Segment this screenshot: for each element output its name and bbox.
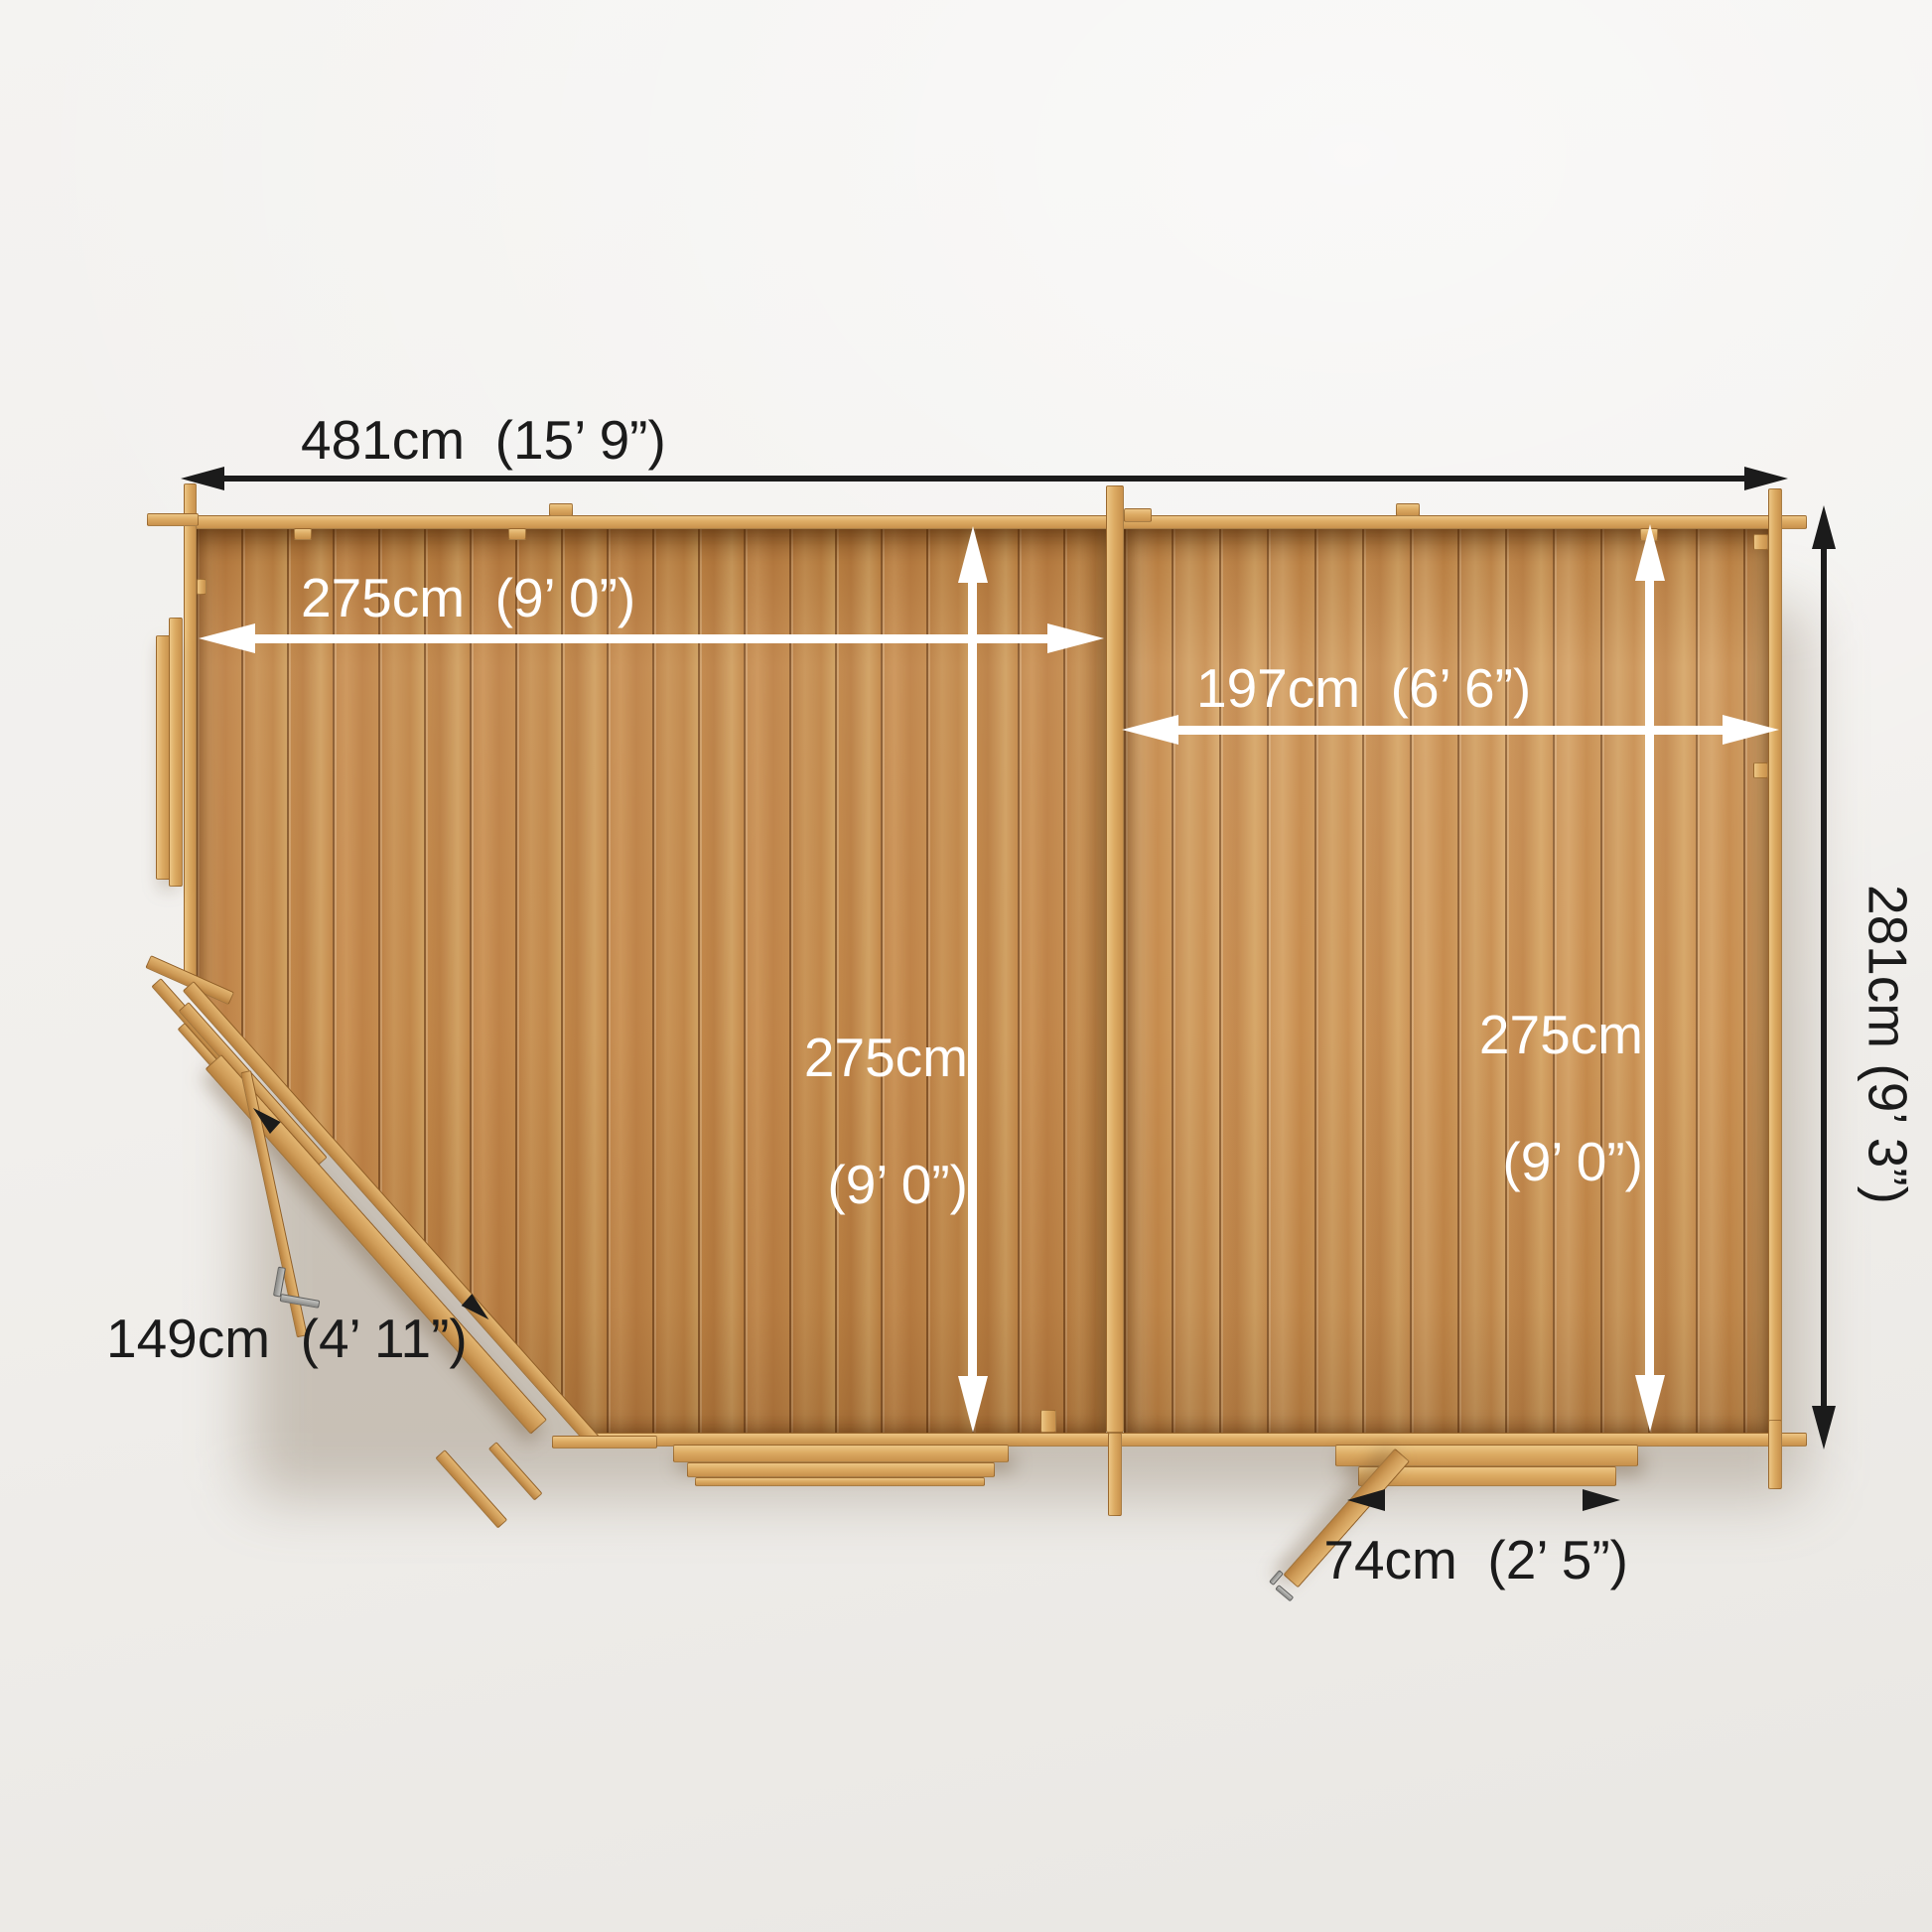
main-door-threshold — [673, 1445, 1009, 1462]
side-room-depth-line2: (9’ 0”) — [1502, 1131, 1643, 1192]
wall-left — [184, 483, 197, 985]
joint-tab — [1396, 503, 1420, 516]
wall-divider — [1106, 485, 1124, 1433]
main-room-width-label: 275cm (9’ 0”) — [301, 571, 635, 625]
joint-tab — [508, 528, 526, 540]
side-room-depth-label: 275cm (9’ 0”) — [1396, 1003, 1643, 1193]
corner-joint-top-left — [147, 513, 199, 526]
joint-tab — [1753, 762, 1768, 778]
wall-top — [196, 515, 1807, 529]
window-sill-inner — [169, 618, 183, 887]
main-door-threshold — [695, 1477, 985, 1486]
main-room-depth-label: 275cm (9’ 0”) — [721, 1026, 968, 1216]
overall-depth-label: 281cm (9’ 3”) — [1861, 885, 1915, 1204]
wall-divider-foot — [1108, 1433, 1122, 1516]
side-door-handle — [1269, 1570, 1284, 1586]
main-room-depth-line1: 275cm — [804, 1027, 968, 1088]
joint-tab — [197, 579, 207, 595]
main-door-threshold — [687, 1462, 995, 1477]
side-room-depth-line1: 275cm — [1479, 1004, 1643, 1065]
wall-right — [1768, 488, 1782, 1447]
cabin-floorplan-diagram: 481cm (15’ 9”) 275cm (9’ 0”) 197cm (6’ 6… — [0, 0, 1932, 1932]
side-room-width-label: 197cm (6’ 6”) — [1196, 661, 1531, 716]
corner-base-trim — [552, 1436, 657, 1449]
joint-tab — [1753, 534, 1768, 550]
side-door-handle — [1275, 1585, 1294, 1601]
joint-tab — [294, 528, 312, 540]
joint-tab — [1124, 508, 1152, 522]
corner-door-width-label: 149cm (4’ 11”) — [106, 1311, 468, 1366]
main-room-depth-line2: (9’ 0”) — [827, 1154, 968, 1215]
corner-joint-bottom-right — [1768, 1420, 1782, 1489]
side-door-width-label: 74cm (2’ 5”) — [1323, 1533, 1628, 1587]
joint-tab — [1040, 1410, 1056, 1433]
joint-tab — [549, 503, 573, 516]
overall-width-label: 481cm (15’ 9”) — [301, 413, 666, 468]
